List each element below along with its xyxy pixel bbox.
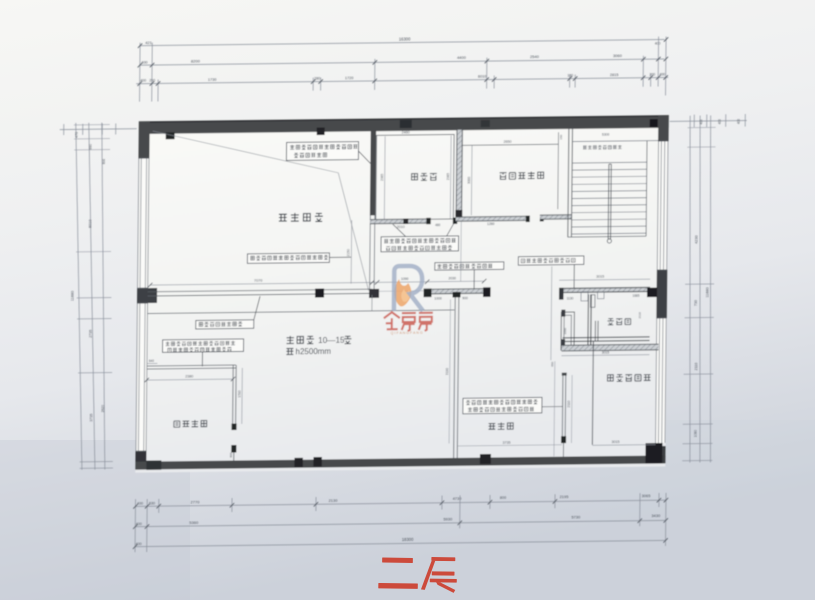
svg-text:2815: 2815 bbox=[610, 73, 618, 77]
svg-text:3065: 3065 bbox=[642, 493, 652, 498]
svg-text:3430: 3430 bbox=[651, 513, 661, 518]
svg-text:18300: 18300 bbox=[402, 537, 414, 542]
svg-text:2010: 2010 bbox=[397, 225, 405, 229]
svg-text:150: 150 bbox=[567, 74, 573, 78]
svg-text:400: 400 bbox=[718, 119, 722, 125]
svg-text:2650: 2650 bbox=[504, 140, 512, 144]
svg-text:h2500mm: h2500mm bbox=[295, 347, 331, 356]
svg-text:4230: 4230 bbox=[695, 235, 699, 243]
svg-text:5360: 5360 bbox=[189, 520, 199, 525]
svg-text:8010: 8010 bbox=[88, 220, 92, 228]
svg-text:1090: 1090 bbox=[401, 277, 409, 281]
svg-text:1730: 1730 bbox=[208, 78, 216, 82]
svg-text:480: 480 bbox=[435, 223, 441, 227]
svg-text:2110: 2110 bbox=[567, 400, 571, 407]
svg-text:4400: 4400 bbox=[457, 55, 467, 60]
svg-text:1720: 1720 bbox=[345, 76, 353, 80]
svg-text:1000: 1000 bbox=[434, 296, 442, 300]
svg-text:3015: 3015 bbox=[612, 440, 620, 444]
svg-text:2985: 2985 bbox=[380, 174, 384, 181]
svg-text:3735: 3735 bbox=[89, 414, 93, 422]
svg-text:1080: 1080 bbox=[694, 430, 698, 438]
svg-text:2985: 2985 bbox=[446, 173, 450, 180]
svg-text:8200: 8200 bbox=[191, 59, 201, 64]
svg-text:400: 400 bbox=[737, 119, 741, 125]
svg-text:1130: 1130 bbox=[567, 297, 574, 301]
svg-text:Q I F A N G F A N G: Q I F A N G F A N G bbox=[391, 331, 423, 335]
svg-text:16300: 16300 bbox=[399, 37, 411, 42]
svg-text:5730: 5730 bbox=[571, 514, 581, 519]
svg-text:3015: 3015 bbox=[602, 351, 610, 355]
svg-text:730: 730 bbox=[694, 300, 698, 306]
svg-text:3015: 3015 bbox=[596, 275, 604, 279]
svg-text:2195: 2195 bbox=[560, 494, 570, 499]
svg-text:7070: 7070 bbox=[254, 279, 262, 283]
svg-text:400: 400 bbox=[655, 42, 661, 46]
svg-text:2150: 2150 bbox=[347, 249, 351, 257]
svg-text:2620: 2620 bbox=[101, 405, 105, 413]
svg-text:2380: 2380 bbox=[185, 375, 193, 379]
svg-text:3735: 3735 bbox=[503, 441, 511, 445]
svg-text:640: 640 bbox=[149, 359, 155, 363]
svg-text:11880: 11880 bbox=[71, 291, 75, 301]
svg-text:690: 690 bbox=[89, 144, 93, 150]
svg-text:650: 650 bbox=[550, 361, 554, 366]
svg-text:2030: 2030 bbox=[448, 276, 456, 280]
svg-text:150: 150 bbox=[559, 134, 563, 139]
svg-text:3060: 3060 bbox=[613, 53, 623, 58]
svg-text:2110: 2110 bbox=[694, 363, 698, 371]
svg-text:421: 421 bbox=[145, 40, 152, 45]
svg-text:2460: 2460 bbox=[402, 131, 410, 135]
svg-text:890: 890 bbox=[102, 159, 106, 165]
svg-text:5300: 5300 bbox=[602, 132, 610, 136]
svg-text:400: 400 bbox=[659, 73, 665, 77]
svg-text:3000: 3000 bbox=[467, 176, 471, 183]
svg-text:2735: 2735 bbox=[89, 330, 93, 338]
svg-text:1280: 1280 bbox=[487, 222, 495, 226]
svg-text:6010: 6010 bbox=[478, 75, 486, 79]
svg-text:2540: 2540 bbox=[530, 54, 540, 59]
svg-text:10—15: 10—15 bbox=[318, 336, 345, 345]
svg-text:5930: 5930 bbox=[443, 516, 453, 521]
svg-text:3190: 3190 bbox=[445, 368, 449, 375]
svg-text:11880: 11880 bbox=[705, 287, 709, 297]
svg-text:1685: 1685 bbox=[632, 294, 639, 298]
svg-text:470: 470 bbox=[75, 132, 79, 138]
svg-text:400: 400 bbox=[141, 60, 147, 64]
svg-text:4730: 4730 bbox=[453, 496, 463, 501]
svg-text:1510: 1510 bbox=[237, 390, 241, 397]
svg-text:2110: 2110 bbox=[638, 312, 642, 319]
svg-text:900: 900 bbox=[462, 296, 468, 300]
svg-text:630: 630 bbox=[149, 501, 155, 505]
svg-text:800: 800 bbox=[229, 452, 233, 457]
svg-text:2770: 2770 bbox=[191, 500, 201, 505]
svg-text:400: 400 bbox=[699, 119, 703, 125]
svg-text:2130: 2130 bbox=[329, 498, 339, 503]
svg-text:800: 800 bbox=[500, 496, 506, 500]
svg-text:400: 400 bbox=[137, 501, 143, 505]
svg-text:1000: 1000 bbox=[563, 327, 567, 334]
